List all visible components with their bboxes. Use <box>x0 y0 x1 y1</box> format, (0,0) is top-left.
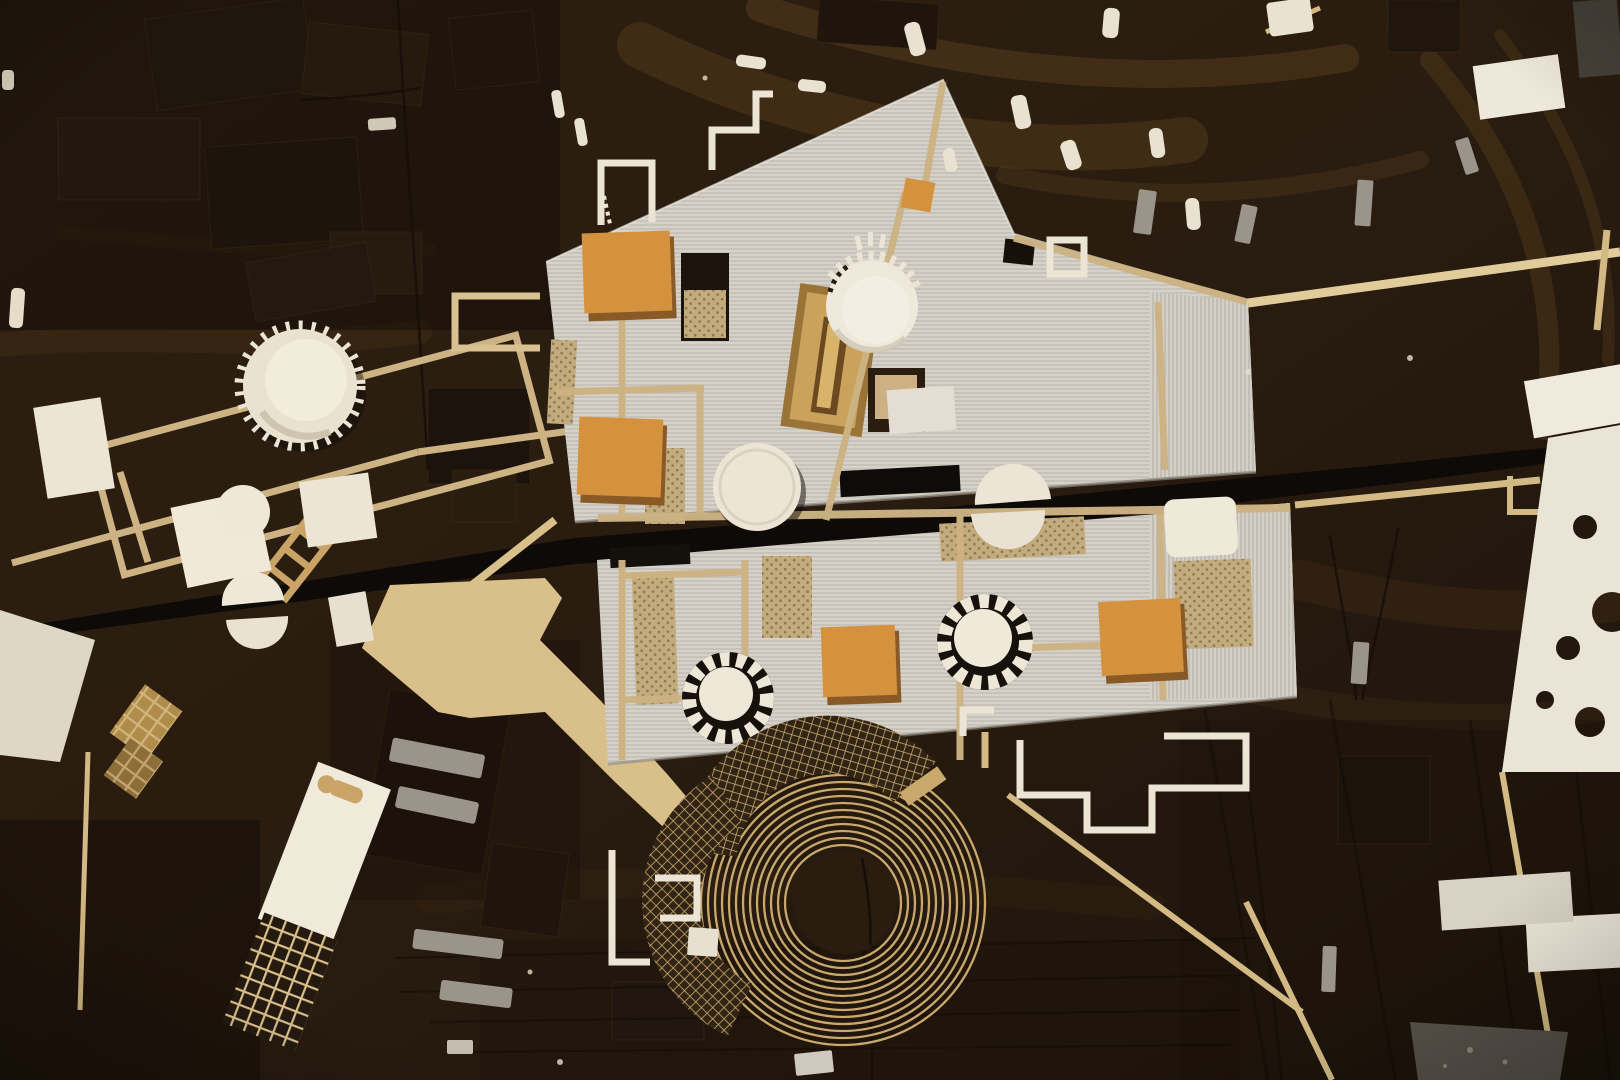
vignette-overlay <box>0 0 1620 1080</box>
model-photo <box>0 0 1620 1080</box>
site-model-scene <box>0 0 1620 1080</box>
